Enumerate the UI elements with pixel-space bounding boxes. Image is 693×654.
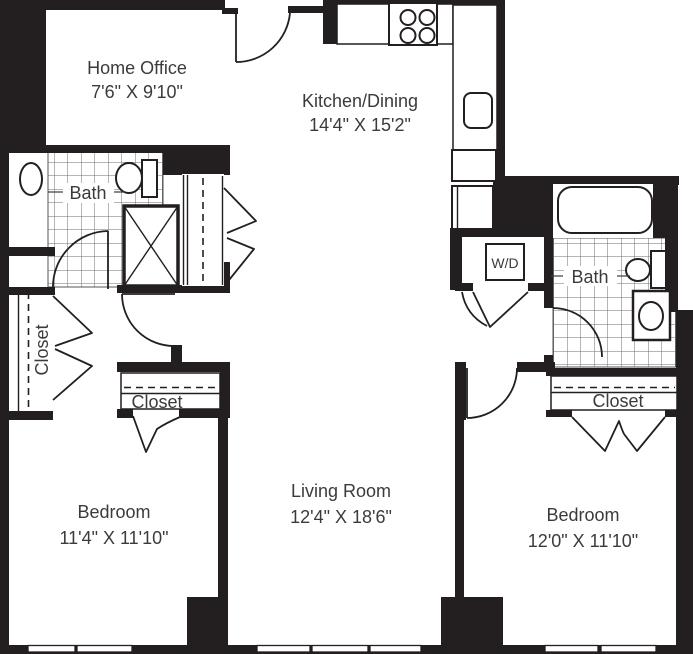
vanity-sink-left-icon bbox=[20, 163, 42, 195]
closet-bedroom-right-label: Closet bbox=[592, 391, 643, 411]
closet-hall-left-label: Closet bbox=[32, 324, 52, 375]
living-room-dims: 12'4" X 18'6" bbox=[290, 507, 392, 527]
closet-bedroom-left-label: Closet bbox=[131, 392, 182, 412]
toilet-left-tank-icon bbox=[142, 160, 157, 197]
window bbox=[601, 646, 656, 653]
toilet-right-bowl-icon bbox=[626, 259, 650, 281]
kitchen-dining-dims: 14'4" X 15'2" bbox=[309, 115, 411, 135]
bath-left-label: Bath bbox=[69, 183, 106, 203]
dishwasher bbox=[452, 150, 496, 181]
kitchen-sink bbox=[464, 93, 492, 128]
window bbox=[257, 646, 310, 653]
toilet-left-bowl-icon bbox=[116, 163, 142, 193]
bathtub-icon bbox=[558, 187, 652, 233]
home-office-dims: 7'6" X 9'10" bbox=[91, 82, 183, 102]
window bbox=[77, 646, 132, 653]
living-room-label: Living Room bbox=[291, 481, 391, 501]
home-office-label: Home Office bbox=[87, 58, 187, 78]
bedroom-right-dims: 12'0" X 11'10" bbox=[528, 531, 638, 551]
laundry-label: W/D bbox=[491, 255, 518, 271]
windows bbox=[28, 646, 656, 653]
window bbox=[28, 646, 75, 653]
vanity-sink-right-icon bbox=[639, 302, 663, 330]
kitchen-dining-label: Kitchen/Dining bbox=[302, 91, 418, 111]
window bbox=[545, 646, 598, 653]
bedroom-left-dims: 11'4" X 11'10" bbox=[59, 528, 168, 548]
window bbox=[312, 646, 368, 653]
toilet-right-tank-icon bbox=[651, 251, 666, 288]
bedroom-right-label: Bedroom bbox=[546, 505, 619, 525]
window bbox=[370, 646, 421, 653]
bedroom-left-label: Bedroom bbox=[77, 502, 150, 522]
floor-plan: W/D Bath Bath bbox=[0, 0, 693, 654]
bath-right-label: Bath bbox=[571, 267, 608, 287]
